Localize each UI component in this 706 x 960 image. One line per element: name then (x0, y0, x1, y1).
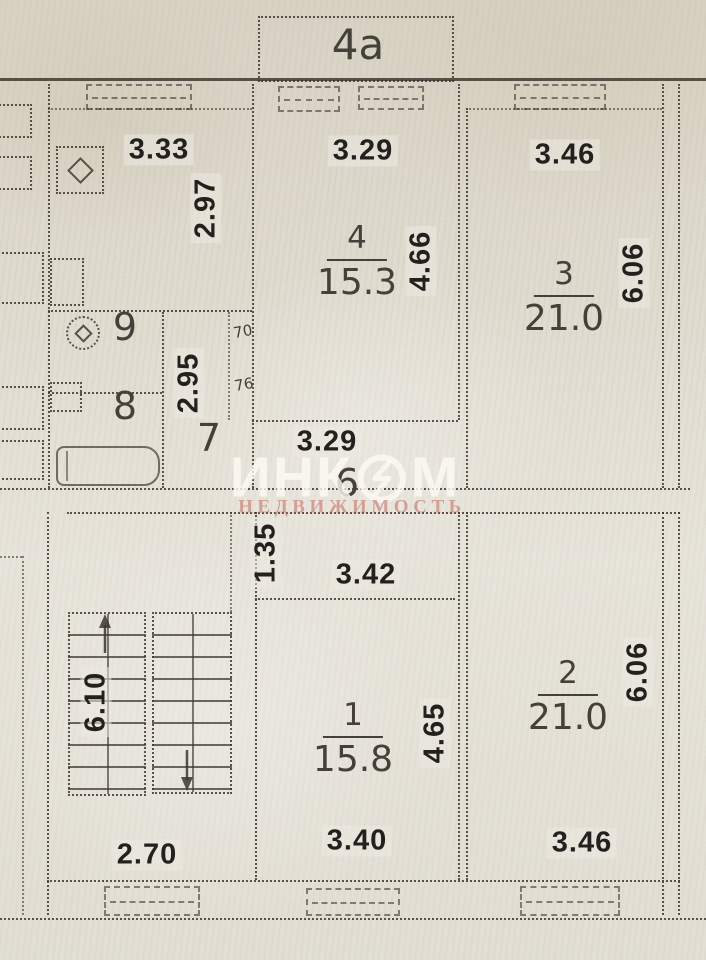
wall-stairwell-left (47, 512, 49, 915)
neighbor-box-1 (0, 104, 32, 138)
wall-right-exterior-outer (678, 84, 680, 488)
room-4-number: 4 (327, 223, 387, 261)
dim-room2-height: 6.06 (623, 637, 654, 707)
dim-room4-height: 4.66 (406, 226, 437, 296)
dim-room3-width: 3.46 (530, 140, 600, 171)
dim-room3-height: 6.06 (619, 238, 650, 308)
dim-kitchen-height: 2.97 (191, 173, 222, 243)
wall-entry-corridor (230, 512, 232, 612)
room-3-label: 3 21.0 (524, 259, 604, 337)
wall-room4-bottom (252, 420, 458, 422)
wall-top-exterior (0, 78, 706, 81)
watermark-subtitle: НЕДВИЖИМОСТЬ (238, 498, 465, 517)
room-2-number: 2 (538, 658, 598, 696)
room-3-number: 3 (534, 259, 594, 297)
bath-sink-icon (50, 382, 82, 412)
room-1-area: 15.8 (313, 738, 393, 778)
dim-room4-width: 3.29 (328, 136, 398, 167)
dim-room1-top-width: 3.42 (331, 560, 401, 591)
wall-wc-right (162, 312, 164, 488)
vent-box-room4-left (278, 86, 340, 112)
neighbor-box-5 (0, 440, 44, 480)
door-width-top: 70 (232, 323, 253, 341)
wall-kitchen-right (252, 84, 254, 488)
room-4-label: 4 15.3 (317, 223, 397, 301)
dim-kitchen-width: 3.33 (124, 135, 194, 166)
toilet-diamond-icon (74, 324, 92, 342)
wall-right-exterior-inner (662, 84, 664, 488)
vent-diamond-icon (67, 157, 94, 184)
wall-lower-right-outer (678, 512, 680, 915)
room-2-area: 21.0 (528, 696, 608, 736)
room-7-number: 7 (197, 419, 221, 457)
window-kitchen (86, 84, 192, 110)
window-room3 (514, 84, 606, 110)
wall-corridor-door-band (228, 312, 230, 420)
kitchen-vent-icon (56, 146, 104, 194)
window-room2 (520, 886, 620, 916)
bathtub-icon (56, 446, 160, 486)
room-9-number: 9 (113, 308, 137, 346)
vent-box-room4-right (358, 86, 424, 110)
dim-room1-height: 4.65 (420, 698, 451, 768)
wall-room1-top (255, 598, 455, 600)
neighbor-box-2 (0, 156, 32, 190)
wall-lower-left-stub (0, 556, 22, 558)
room-2-label: 2 21.0 (528, 658, 608, 736)
dim-room1-bottom-width: 3.40 (322, 826, 392, 857)
neighbor-box-4 (0, 386, 44, 430)
neighbor-box-3 (0, 252, 44, 304)
wall-room4-room3-divider-b (466, 108, 468, 488)
window-room1 (306, 888, 400, 916)
wall-room4-room3-divider-a (458, 84, 460, 420)
dim-room2-bottom-width: 3.46 (547, 828, 617, 859)
floor-plan: 3.33 3.29 3.46 3.29 3.42 2.70 3.40 3.46 … (0, 0, 706, 960)
wall-room1-room2-divider-b (466, 512, 468, 880)
room-4-area: 15.3 (317, 261, 397, 301)
dim-corridor-height: 1.35 (251, 518, 282, 588)
wall-lower-left-outer (22, 556, 24, 915)
room-8-number: 8 (113, 387, 137, 425)
dim-wc-height: 2.95 (174, 348, 205, 418)
wall-room1-room2-divider-a (458, 512, 460, 880)
wall-lower-right-inner (662, 512, 664, 915)
toilet-icon (66, 316, 100, 350)
dim-bottom-left-width: 2.70 (112, 840, 182, 871)
window-stairwell (104, 886, 200, 916)
room-3-area: 21.0 (524, 297, 604, 337)
dim-stairs-height: 6.10 (81, 667, 112, 737)
room-1-number: 1 (323, 700, 383, 738)
door-width-bottom: 76 (233, 376, 254, 394)
kitchen-sink-icon (50, 258, 84, 306)
balcony-label: 4а (332, 24, 384, 66)
wall-lower-bottom-inner (47, 880, 680, 882)
stairs-down-arrow-icon (178, 750, 196, 792)
stairs-up-arrow-icon (96, 613, 114, 653)
room-1-label: 1 15.8 (313, 700, 393, 778)
wall-lower-bottom-outer (0, 918, 706, 920)
wall-kitchen-bottom (48, 310, 252, 312)
